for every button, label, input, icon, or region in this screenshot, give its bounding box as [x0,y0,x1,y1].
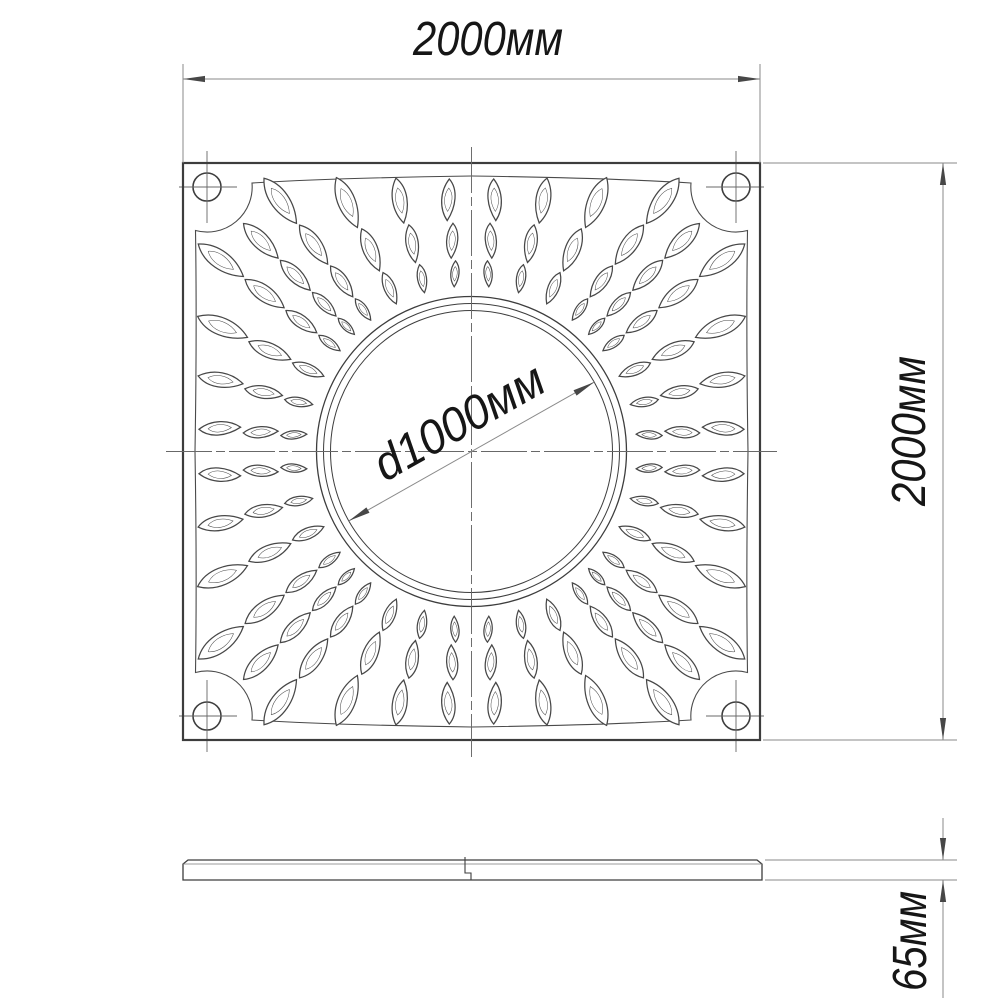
plan-view: 2000мм 2000мм d1000мм [166,13,957,757]
leaf [483,223,499,259]
leaf [586,316,607,337]
dimension-arrow [940,163,946,185]
dimension-arrow [940,838,946,860]
leaf [569,296,592,322]
section-geometry [183,818,957,998]
leaf [699,366,747,393]
leaf [555,226,589,273]
section-view: 65мм [183,818,957,998]
width-dim-label: 2000мм [412,13,563,66]
drawing-page: 2000мм 2000мм d1000мм 65мм [0,0,1000,1000]
dimension-arrow [738,76,760,82]
leaf [665,425,701,441]
leaf [702,419,744,438]
leaf [529,177,556,225]
section-plate-outline [183,860,762,880]
leaf [617,357,652,382]
dimension-arrow [940,880,946,902]
leaf [585,263,618,301]
bolt-hole-crosshair [706,151,764,223]
leaf [601,332,627,355]
leaf [636,429,662,441]
drawing-canvas: 2000мм 2000мм d1000мм 65мм [0,0,1000,1000]
leaf [485,179,504,221]
dimension-arrow [183,76,205,82]
leaf [603,289,634,320]
thickness-extension-lines [765,860,957,880]
leaf [695,236,750,284]
leaf [655,273,703,315]
leaf [692,307,748,347]
leaf [576,174,616,230]
leaf [512,264,529,294]
leaf [608,221,650,269]
leaf [623,305,661,338]
height-dim-label: 2000мм [883,356,936,507]
leaf [629,394,659,411]
leaf [628,256,668,296]
leaf [482,261,494,287]
leaf [659,381,699,404]
thickness-dim-label: 65мм [884,891,937,991]
leaf [541,270,566,305]
leaf [519,224,542,264]
leaf [659,218,705,264]
leaf [650,334,697,368]
dimension-arrow [940,718,946,740]
